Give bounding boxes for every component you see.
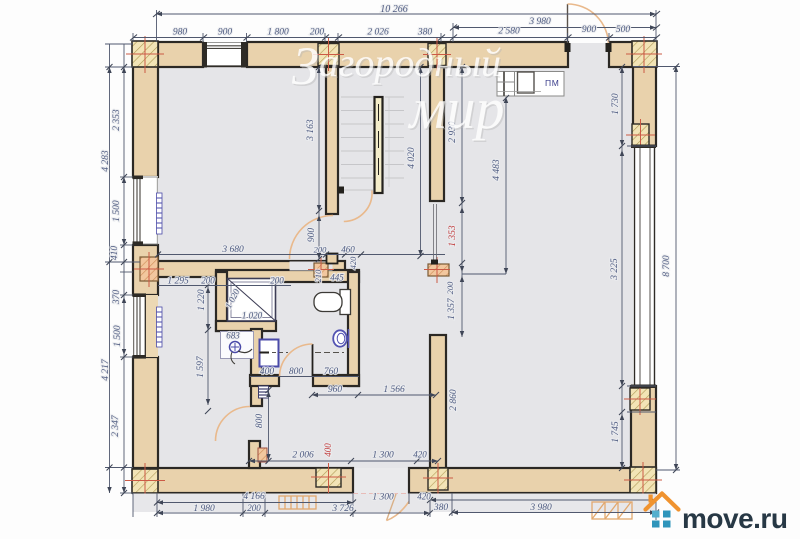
svg-text:900: 900 — [218, 28, 233, 38]
svg-text:445: 445 — [330, 273, 344, 283]
svg-text:4 217: 4 217 — [101, 358, 111, 381]
svg-text:1 300: 1 300 — [372, 493, 394, 503]
svg-text:800: 800 — [255, 414, 265, 429]
svg-text:1 357: 1 357 — [447, 297, 457, 320]
svg-text:1 500: 1 500 — [112, 200, 122, 222]
svg-text:200: 200 — [270, 276, 284, 286]
svg-text:410: 410 — [110, 246, 120, 261]
svg-text:1 730: 1 730 — [611, 93, 621, 115]
svg-text:3 225: 3 225 — [610, 258, 620, 281]
svg-text:4 283: 4 283 — [101, 150, 111, 172]
svg-text:мир: мир — [407, 76, 504, 141]
svg-text:4 166: 4 166 — [243, 492, 265, 502]
svg-text:1 980: 1 980 — [193, 504, 215, 514]
svg-text:3 726: 3 726 — [331, 504, 354, 514]
svg-text:3 680: 3 680 — [221, 245, 244, 255]
svg-text:980: 980 — [173, 28, 188, 38]
svg-text:420: 420 — [413, 450, 427, 460]
svg-text:210: 210 — [313, 269, 323, 283]
svg-text:3 980: 3 980 — [529, 503, 552, 513]
svg-text:10 266: 10 266 — [380, 4, 408, 15]
svg-text:8 700: 8 700 — [662, 255, 672, 277]
svg-text:2 353: 2 353 — [112, 109, 122, 131]
svg-text:2 347: 2 347 — [111, 414, 121, 437]
svg-text:ПМ: ПМ — [545, 78, 559, 88]
svg-text:3 163: 3 163 — [306, 119, 316, 142]
svg-text:1 295: 1 295 — [167, 277, 189, 287]
svg-text:800: 800 — [289, 367, 304, 377]
svg-text:200: 200 — [445, 281, 455, 295]
svg-text:200: 200 — [247, 503, 261, 513]
svg-text:200: 200 — [201, 276, 215, 286]
svg-text:370: 370 — [112, 290, 122, 306]
svg-text:960: 960 — [328, 385, 343, 395]
svg-text:900: 900 — [307, 228, 317, 243]
svg-text:3 980: 3 980 — [528, 17, 551, 27]
svg-text:1 566: 1 566 — [383, 385, 405, 395]
svg-text:1 800: 1 800 — [267, 28, 289, 38]
svg-text:900: 900 — [582, 25, 597, 35]
svg-text:400: 400 — [260, 367, 275, 377]
svg-text:1 220: 1 220 — [197, 289, 207, 311]
svg-text:4 020: 4 020 — [407, 147, 417, 169]
svg-text:2 026: 2 026 — [367, 28, 389, 38]
svg-text:420: 420 — [417, 492, 431, 502]
svg-text:1 500: 1 500 — [113, 325, 123, 347]
svg-text:380: 380 — [417, 28, 433, 38]
svg-text:760: 760 — [324, 367, 339, 377]
svg-text:move.ru: move.ru — [682, 503, 787, 534]
svg-text:1 745: 1 745 — [611, 421, 621, 443]
svg-text:380: 380 — [433, 503, 449, 513]
svg-text:4 483: 4 483 — [492, 159, 502, 181]
svg-text:1 300: 1 300 — [372, 451, 394, 461]
svg-text:683: 683 — [226, 331, 240, 341]
svg-text:1 597: 1 597 — [196, 355, 206, 378]
svg-text:2 006: 2 006 — [292, 451, 314, 461]
svg-text:420: 420 — [348, 256, 358, 270]
svg-text:1 353: 1 353 — [448, 225, 458, 247]
svg-text:400: 400 — [323, 443, 333, 457]
svg-text:500: 500 — [616, 25, 631, 35]
svg-text:2 580: 2 580 — [498, 27, 520, 37]
svg-text:1 020: 1 020 — [242, 311, 263, 321]
svg-text:2 860: 2 860 — [449, 389, 459, 411]
svg-text:460: 460 — [341, 245, 355, 255]
